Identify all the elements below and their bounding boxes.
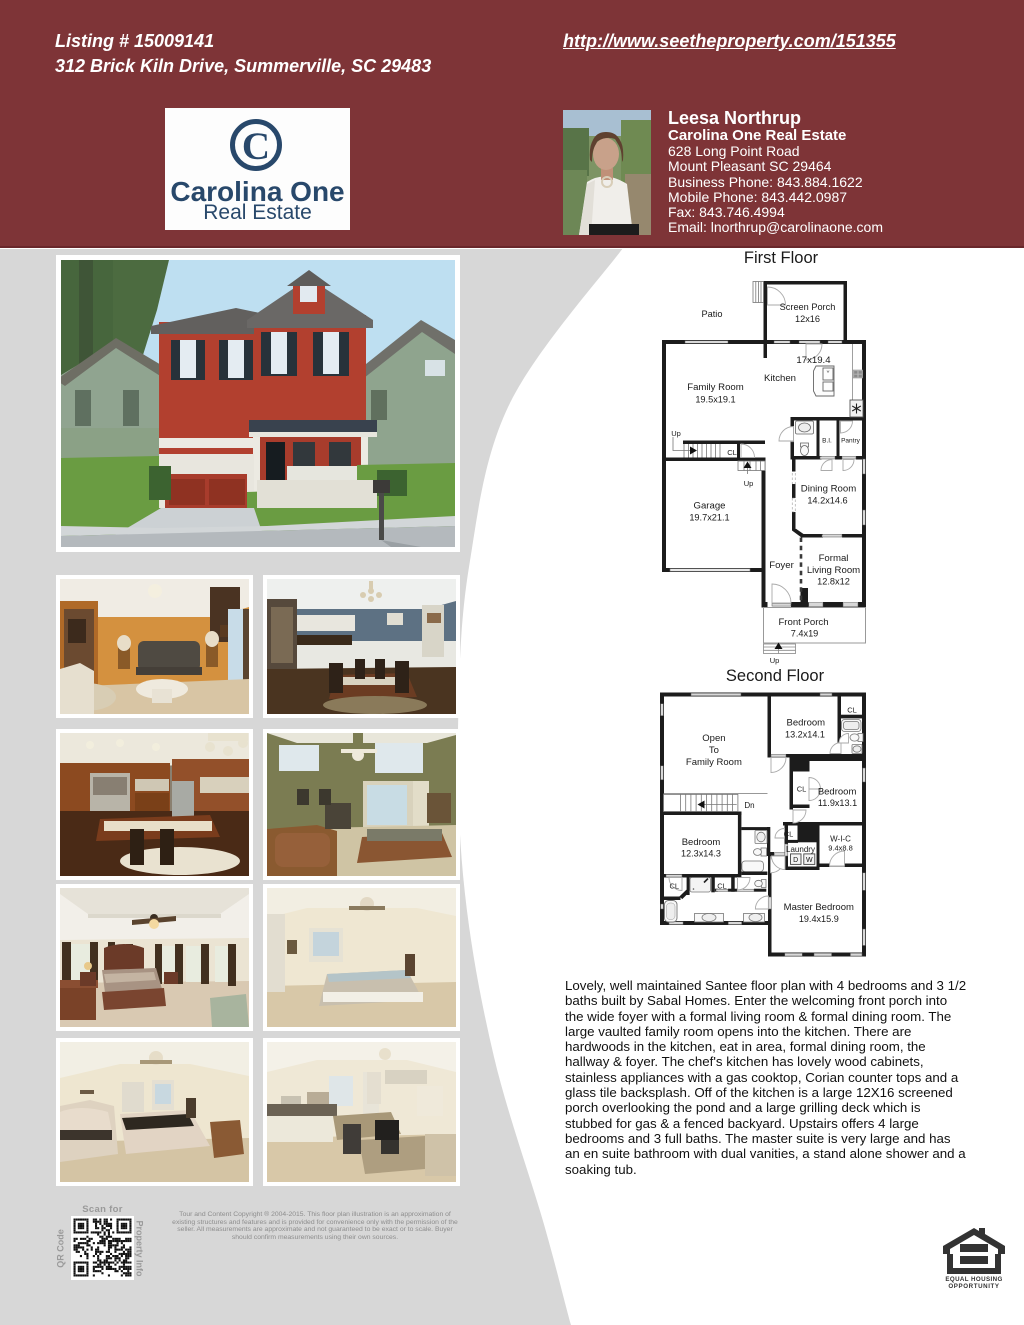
svg-text:Up: Up bbox=[744, 479, 754, 488]
svg-text:12.8x12: 12.8x12 bbox=[817, 577, 850, 587]
svg-text:Bedroom: Bedroom bbox=[787, 718, 826, 729]
svg-text:Patio: Patio bbox=[702, 309, 723, 319]
svg-text:OPPORTUNITY: OPPORTUNITY bbox=[948, 1283, 1000, 1290]
svg-text:Family Room: Family Room bbox=[686, 757, 742, 768]
svg-text:Dn: Dn bbox=[744, 801, 754, 810]
svg-text:Formal: Formal bbox=[819, 553, 849, 564]
svg-text:12x16: 12x16 bbox=[795, 314, 820, 324]
svg-text:Dining Room: Dining Room bbox=[801, 484, 856, 495]
svg-text:17x19.4: 17x19.4 bbox=[796, 355, 831, 366]
svg-text:EQUAL HOUSING: EQUAL HOUSING bbox=[945, 1276, 1002, 1283]
svg-text:Family Room: Family Room bbox=[687, 382, 744, 393]
svg-text:W-I-C: W-I-C bbox=[830, 835, 851, 844]
svg-text:14.2x14.6: 14.2x14.6 bbox=[807, 496, 847, 506]
svg-text:Second Floor: Second Floor bbox=[726, 667, 825, 685]
svg-text:Front Porch: Front Porch bbox=[778, 617, 828, 628]
svg-text:19.4x15.9: 19.4x15.9 bbox=[799, 914, 839, 924]
svg-text:Foyer: Foyer bbox=[769, 560, 794, 571]
svg-text:Open: Open bbox=[702, 733, 725, 744]
svg-text:Screen Porch: Screen Porch bbox=[780, 302, 836, 312]
svg-text:To: To bbox=[709, 745, 719, 756]
svg-text:Living Room: Living Room bbox=[807, 565, 860, 576]
svg-text:Master Bedroom: Master Bedroom bbox=[784, 902, 854, 913]
svg-text:C: C bbox=[242, 125, 270, 168]
svg-text:11.9x13.1: 11.9x13.1 bbox=[818, 798, 857, 808]
svg-text:Kitchen: Kitchen bbox=[764, 373, 796, 384]
svg-text:Garage: Garage bbox=[694, 501, 726, 512]
svg-text:13.2x14.1: 13.2x14.1 bbox=[785, 730, 825, 740]
svg-text:7.4x19: 7.4x19 bbox=[791, 629, 819, 639]
svg-text:CL: CL bbox=[847, 706, 857, 715]
svg-text:CL: CL bbox=[717, 882, 727, 891]
svg-text:B.I.: B.I. bbox=[822, 438, 832, 445]
svg-text:CL: CL bbox=[670, 882, 680, 891]
svg-text:9.4x8.8: 9.4x8.8 bbox=[828, 844, 853, 853]
svg-text:W: W bbox=[806, 857, 813, 864]
svg-text:Laundry: Laundry bbox=[786, 845, 815, 854]
svg-text:Pantry: Pantry bbox=[841, 438, 861, 445]
svg-text:First Floor: First Floor bbox=[744, 249, 819, 267]
svg-text:CL: CL bbox=[727, 448, 737, 457]
svg-text:19.5x19.1: 19.5x19.1 bbox=[695, 395, 735, 405]
svg-text:CL: CL bbox=[797, 785, 807, 794]
svg-text:CL: CL bbox=[784, 830, 794, 839]
svg-text:19.7x21.1: 19.7x21.1 bbox=[689, 513, 729, 523]
svg-text:Up: Up bbox=[671, 429, 681, 438]
svg-text:Bedroom: Bedroom bbox=[682, 837, 721, 848]
svg-text:12.3x14.3: 12.3x14.3 bbox=[681, 849, 721, 859]
svg-text:D: D bbox=[793, 857, 798, 864]
svg-text:Bedroom: Bedroom bbox=[818, 787, 857, 798]
